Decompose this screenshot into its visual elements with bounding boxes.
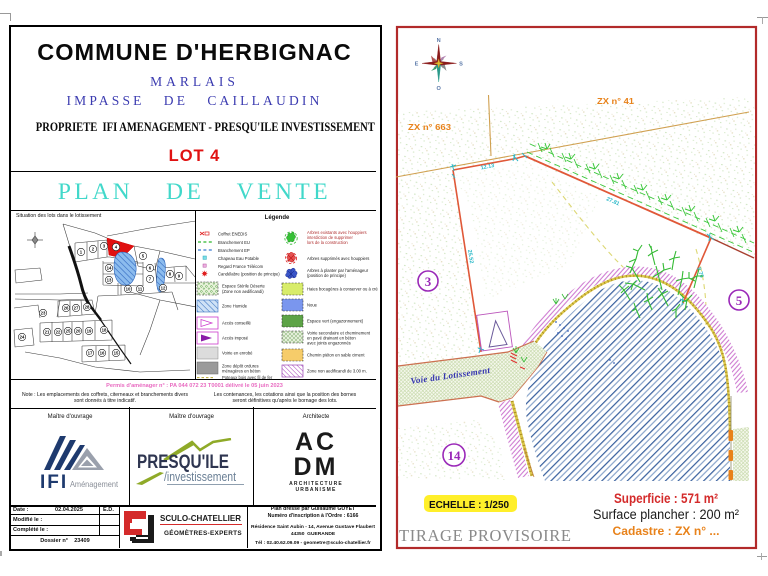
svg-text:14: 14 — [448, 448, 462, 463]
svg-text:Chemin piéton en sable ciment: Chemin piéton en sable ciment — [307, 353, 365, 358]
svg-text:Zone Humide: Zone Humide — [222, 304, 248, 309]
svg-text:E: E — [415, 62, 419, 68]
svg-text:11: 11 — [138, 287, 143, 292]
svg-text:ZX n° 41: ZX n° 41 — [597, 96, 634, 106]
svg-text:Coffret ENEDIS: Coffret ENEDIS — [218, 232, 247, 237]
svg-text:Regard France Télécom: Regard France Télécom — [218, 264, 264, 269]
svg-text:3: 3 — [425, 274, 432, 289]
svg-text:25: 25 — [66, 329, 71, 334]
svg-text:GÉOMÈTRES-EXPERTS: GÉOMÈTRES-EXPERTS — [164, 528, 242, 537]
svg-text:(Zone non aedificandi): (Zone non aedificandi) — [222, 289, 264, 294]
svg-text:5: 5 — [736, 293, 743, 308]
svg-text:SCULO-CHATELLIER: SCULO-CHATELLIER — [160, 513, 241, 523]
svg-text:Chapeau Eau Potable: Chapeau Eau Potable — [218, 256, 260, 261]
svg-text:Légende: Légende — [265, 215, 290, 221]
svg-text:lors de la construction: lors de la construction — [307, 240, 348, 245]
svg-text:21: 21 — [45, 330, 50, 335]
svg-text:14: 14 — [107, 266, 112, 271]
svg-text:Accès imposé: Accès imposé — [222, 336, 249, 341]
svg-text:O: O — [437, 86, 442, 92]
svg-text:ménagères en béton: ménagères en béton — [222, 369, 261, 374]
svg-text:18: 18 — [102, 328, 107, 333]
svg-text:(position de principe): (position de principe) — [307, 273, 346, 278]
svg-text:Espace Stérile Déserte: Espace Stérile Déserte — [222, 284, 265, 289]
svg-text:27: 27 — [74, 306, 79, 311]
svg-text:N: N — [437, 38, 441, 44]
svg-text:Branchement EU: Branchement EU — [218, 240, 250, 245]
svg-text:/investissement: /investissement — [164, 470, 236, 484]
svg-text:Branchement EP: Branchement EP — [218, 248, 250, 253]
svg-text:Aménagement: Aménagement — [70, 479, 119, 489]
svg-text:16: 16 — [100, 351, 105, 356]
svg-text:Voirie en enrobé: Voirie en enrobé — [222, 351, 253, 356]
svg-text:ECHELLE : 1/250: ECHELLE : 1/250 — [429, 499, 509, 511]
svg-text:IFI: IFI — [40, 472, 68, 493]
svg-text:Surface plancher : 200 m²: Surface plancher : 200 m² — [593, 507, 739, 522]
svg-text:Haies bocagères à conserver ou: Haies bocagères à conserver ou à créer — [307, 287, 378, 292]
svg-text:TIRAGE PROVISOIRE: TIRAGE PROVISOIRE — [399, 526, 571, 545]
svg-text:ZX n° 663: ZX n° 663 — [408, 122, 451, 132]
svg-text:23: 23 — [41, 311, 46, 316]
svg-text:Zone non aedificandi de 3.00 m: Zone non aedificandi de 3.00 m. — [307, 369, 367, 374]
svg-text:19: 19 — [87, 329, 92, 334]
svg-text:24: 24 — [20, 335, 25, 340]
svg-text:28: 28 — [85, 305, 90, 310]
svg-text:13: 13 — [107, 278, 112, 283]
svg-text:22: 22 — [56, 330, 61, 335]
svg-text:Arbres supprimés avec houppier: Arbres supprimés avec houppiers — [307, 256, 369, 261]
svg-text:S: S — [459, 62, 463, 68]
svg-text:15: 15 — [114, 351, 119, 356]
svg-text:Espace vert (engazonnement): Espace vert (engazonnement) — [307, 319, 364, 324]
svg-text:Cadastre : ZX n° ...: Cadastre : ZX n° ... — [613, 524, 720, 538]
svg-text:Candélabre (position de princi: Candélabre (position de principe) — [218, 272, 280, 277]
svg-text:10: 10 — [126, 287, 131, 292]
svg-text:12: 12 — [161, 286, 166, 291]
svg-text:avec joints engazonnés: avec joints engazonnés — [307, 341, 351, 346]
svg-text:Superficie : 571 m²: Superficie : 571 m² — [614, 491, 718, 506]
svg-text:17: 17 — [88, 351, 93, 356]
svg-text:Noue: Noue — [307, 303, 318, 308]
svg-text:Accès conseillé: Accès conseillé — [222, 321, 252, 326]
svg-text:20: 20 — [76, 329, 81, 334]
svg-text:26: 26 — [64, 306, 69, 311]
